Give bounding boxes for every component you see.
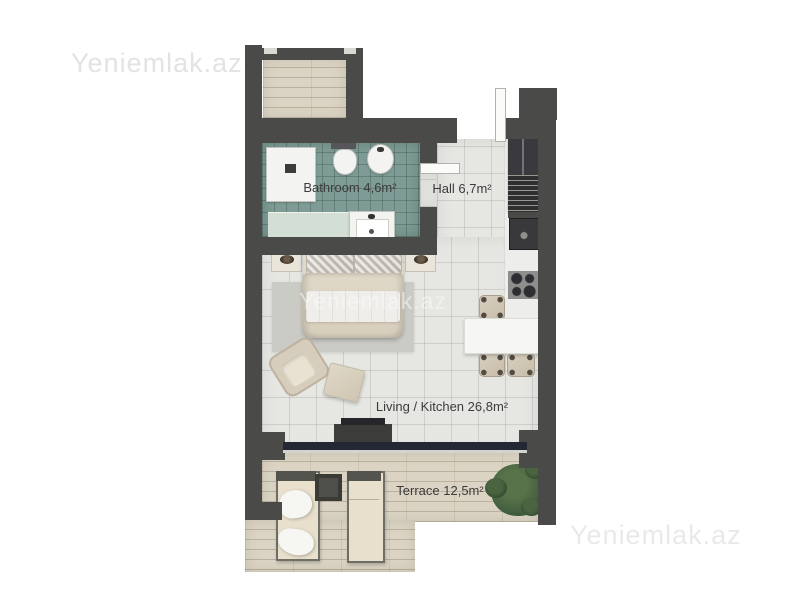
upper-balcony-floor (263, 58, 346, 120)
washbasin-faucet-icon (368, 214, 375, 219)
armchair-seat (280, 351, 318, 388)
shower-drain-icon (285, 164, 296, 173)
terrace-label: Terrace 12,5m² (358, 483, 522, 498)
window-band (283, 442, 527, 450)
cooktop (508, 271, 538, 299)
wall-terrace-left-foot (262, 502, 282, 520)
hall-label: Hall 6,7m² (412, 181, 512, 196)
terrace-floor-lower (245, 520, 415, 572)
kitchen-counter-ext (505, 299, 538, 320)
wall-window-pillar-left (262, 432, 285, 460)
bidet (367, 144, 394, 174)
lounger-seam (349, 499, 379, 500)
lounger-pillow (278, 488, 314, 520)
wall-left (245, 45, 262, 520)
vanity-counter (268, 212, 350, 237)
dining-chair-bottom-right (507, 353, 535, 377)
watermark-center: Yeniemlak.az (299, 288, 447, 315)
laundry-unit (508, 175, 538, 212)
fridge (508, 133, 538, 175)
sun-lounger-left (276, 471, 320, 561)
tv-panel-icon (341, 418, 385, 425)
lounger-towel (277, 527, 316, 557)
bidet-faucet-icon (377, 147, 384, 152)
dining-chair-top (479, 295, 505, 320)
entry-door-leaf (495, 88, 506, 142)
toilet-tank (331, 142, 356, 149)
dining-table (464, 318, 540, 354)
floorplan-image: Yeniemlak.az Yeniemlak.az Yeniemlak.az (0, 0, 800, 600)
bathroom-door-leaf (420, 163, 460, 174)
wall-notch (264, 48, 277, 54)
oven (509, 218, 539, 250)
toilet (333, 149, 357, 175)
wall-headboard (262, 237, 437, 255)
lounger-headrest (347, 471, 381, 481)
dining-chair-bottom-left (479, 353, 505, 377)
watermark-bottom-right: Yeniemlak.az (570, 520, 742, 551)
lounger-headrest (276, 471, 316, 481)
wall-hall-top-right (505, 118, 538, 139)
nightstand-tray-icon (414, 255, 428, 264)
washbasin-drain-icon (369, 229, 374, 234)
wall-balcony-right (346, 48, 363, 120)
nightstand-tray-icon (280, 255, 294, 264)
living-kitchen-label: Living / Kitchen 26,8m² (340, 399, 544, 414)
window-sill (283, 450, 527, 453)
tv-console (334, 424, 392, 444)
wall-notch (344, 48, 356, 54)
terrace-side-table (315, 474, 342, 501)
watermark-top-left: Yeniemlak.az (71, 48, 243, 79)
